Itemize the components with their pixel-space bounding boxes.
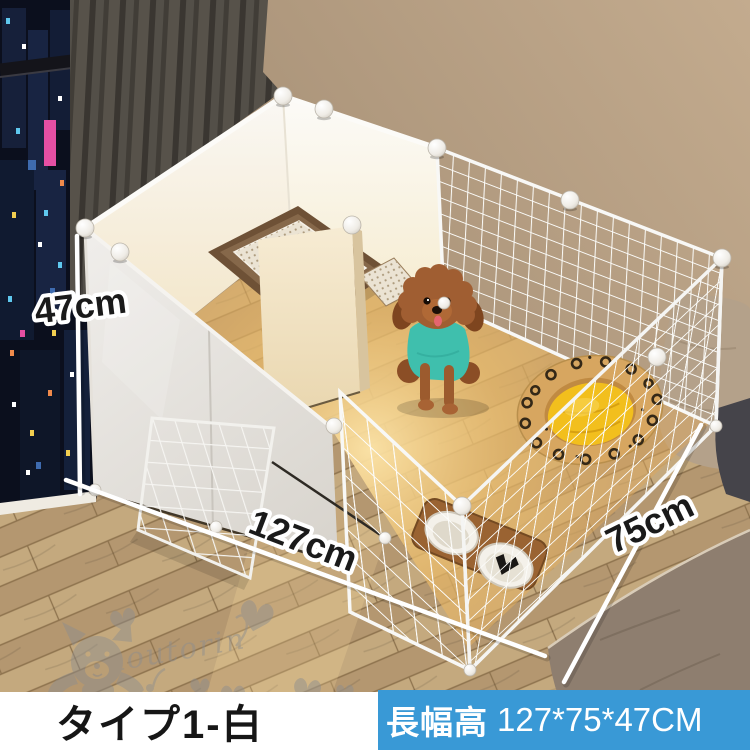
product-photo: 47cm 127cm 75cm xyxy=(0,0,750,750)
type-label: タイプ1-白 xyxy=(56,692,264,750)
size-prefix-label: 長幅高 xyxy=(386,696,488,744)
size-value-label: 127*75*47CM xyxy=(497,701,702,739)
footer-size-bar: 長幅高 127*75*47CM xyxy=(378,690,750,750)
footer-type-bar: タイプ1-白 xyxy=(0,692,378,750)
photo-scene: 47cm 127cm 75cm xyxy=(0,0,750,750)
dimension-line-height xyxy=(77,236,80,494)
